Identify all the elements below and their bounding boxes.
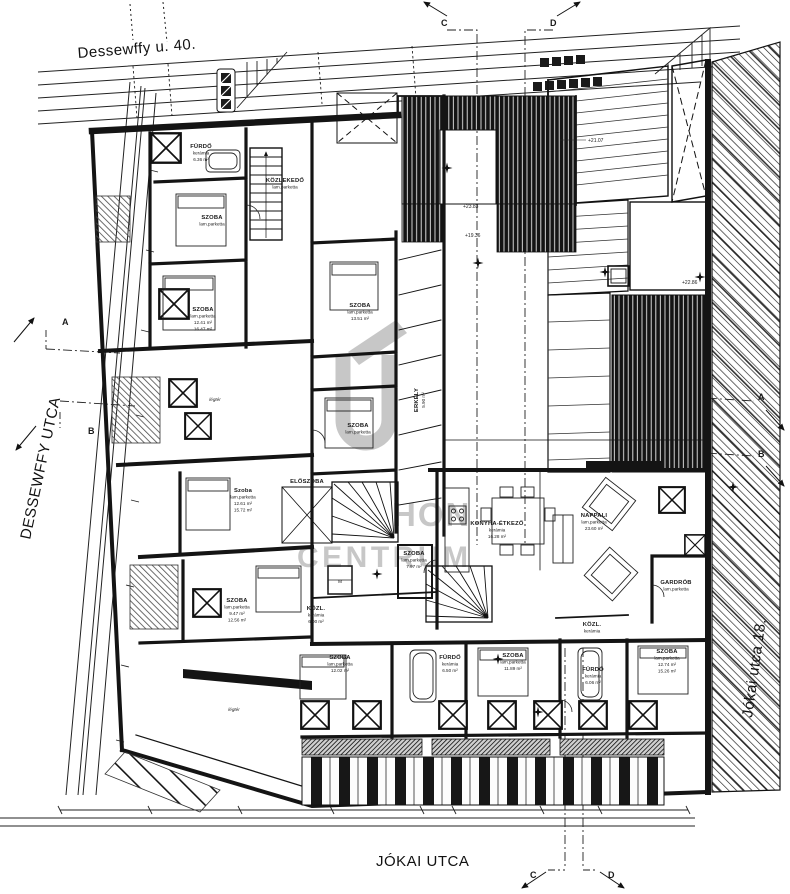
svg-text:9.47 m²: 9.47 m² [229,611,245,616]
dark-roof-block-top-right [497,204,576,252]
room-label-szoba4: SZOBAlam.parketta [345,423,371,435]
svg-text:lam.parketta: lam.parketta [500,660,526,665]
room-label-furdo2: FÜRDŐkerámia6.50 m² [439,654,461,673]
watermark-roof-glyph [348,320,407,365]
svg-text:FÜRDŐ: FÜRDŐ [439,654,461,661]
svg-text:6.06 m²: 6.06 m² [585,680,601,685]
svg-text:12.56 m²: 12.56 m² [228,618,247,623]
svg-text:SZOBA: SZOBA [403,551,425,557]
svg-text:lam.parketta: lam.parketta [663,587,689,592]
lounge-chair [584,547,638,601]
section-marker-c-top: C [441,18,448,28]
svg-text:lam.parketta: lam.parketta [401,558,427,563]
svg-text:+23.83: +23.83 [463,204,479,210]
roof-terrace-room [608,202,706,290]
svg-text:FÜRDŐ: FÜRDŐ [582,666,604,673]
dark-roof-block-middle [612,295,708,472]
room-label-szoba10: SZOBAlam.parketta9.47 m²12.56 m² [224,598,250,623]
svg-text:lam.parketta: lam.parketta [327,662,353,667]
svg-text:FÜRDŐ: FÜRDŐ [190,143,212,150]
section-marker-b-right: B [758,449,765,459]
svg-text:+22.86: +22.86 [682,280,698,286]
elevator-label: M [338,579,342,584]
svg-text:NAPPALI: NAPPALI [581,513,608,519]
room-label-furdo3: FÜRDŐkerámia6.06 m² [582,666,604,685]
svg-text:SZOBA: SZOBA [502,653,524,659]
svg-text:kerámia: kerámia [585,674,602,679]
svg-text:kerámia: kerámia [308,613,325,618]
svg-text:6.00 m²: 6.00 m² [308,619,324,624]
svg-text:SZOBA: SZOBA [329,655,351,661]
section-marker-a-left: A [62,317,69,327]
svg-text:kerámia: kerámia [193,151,210,156]
svg-text:ELŐSZOBA: ELŐSZOBA [290,478,324,485]
svg-text:ERKÉLY: ERKÉLY [412,388,420,412]
svg-text:lam.parketta: lam.parketta [272,185,298,190]
svg-text:12.74 m²: 12.74 m² [658,662,677,667]
room-label-szoba2: SZOBAlam.parketta12.41 m²16.47 m² [190,307,216,332]
svg-text:SZOBA: SZOBA [226,598,248,604]
svg-text:11.89 m²: 11.89 m² [504,666,522,671]
svg-text:kerámia: kerámia [442,662,459,667]
street-label-left: DESSEWFFY UTCA [17,395,64,540]
room-label-kozlekedo: KÖZLEKEDŐlam.parketta [266,177,304,190]
room-label-szoba1: SZOBAlam.parketta [199,215,225,227]
svg-text:KONYHA-ÉTKEZŐ: KONYHA-ÉTKEZŐ [470,519,523,527]
roof-lantern-xbrace [672,60,706,202]
sideboard [553,515,573,563]
svg-text:légtér: légtér [209,397,221,402]
dark-roof-block-top-leg [402,204,444,242]
dark-roof-block-top [402,96,576,204]
room-label-kozl1: KÖZL.kerámia6.00 m² [307,605,326,624]
section-marker-a-right: A [758,392,765,402]
svg-text:lam.parketta: lam.parketta [654,656,680,661]
eloszoba-shaft [282,487,332,543]
svg-text:KÖZL.: KÖZL. [583,621,602,628]
svg-text:SZOBA: SZOBA [192,307,214,313]
svg-text:15.72 m²: 15.72 m² [234,508,253,513]
svg-text:23.60 m²: 23.60 m² [585,526,604,531]
room-label-kozl2: KÖZL.kerámia [583,621,602,634]
svg-text:12.61 m²: 12.61 m² [234,501,253,506]
svg-text:+19.36: +19.36 [465,233,481,239]
room-label-eloszoba: ELŐSZOBA [290,478,324,485]
bed [186,478,230,530]
room-label-nappali: NAPPALIlam.parketta23.60 m² [581,513,608,531]
svg-text:5.90 m²: 5.90 m² [421,392,426,408]
room-label-gardrob: GARDRÓBlam.parketta [660,578,691,592]
svg-text:lam.parketta: lam.parketta [347,310,373,315]
svg-text:légtér: légtér [228,707,240,712]
svg-text:7.97 m²: 7.97 m² [406,564,422,569]
room-label-szoba8: SZOBAlam.parketta11.89 m² [500,653,526,671]
svg-text:SZOBA: SZOBA [656,649,678,655]
svg-text:lam.parketta: lam.parketta [345,430,371,435]
svg-text:12.41 m²: 12.41 m² [194,320,213,325]
svg-text:6.36 m²: 6.36 m² [193,157,209,162]
svg-text:lam.parketta: lam.parketta [224,605,250,610]
svg-text:kerámia: kerámia [489,528,506,533]
watermark-text-top: HON [392,496,471,533]
svg-text:lam.parketta: lam.parketta [199,222,225,227]
street-label-top: Dessewffy u. 40. [77,36,197,62]
bathtub [410,650,436,702]
svg-text:12.02 m²: 12.02 m² [331,668,350,673]
bathtub [206,150,240,172]
room-label-szoba5: Szobalam.parketta12.61 m²15.72 m² [230,488,256,513]
gray-hatch-blocks [96,196,220,812]
room-label-legter1: légtér [209,397,221,402]
room-label-erkely: ERKÉLY5.90 m² [412,388,426,412]
svg-text:13.51 m²: 13.51 m² [351,316,370,321]
svg-text:SZOBA: SZOBA [347,423,369,429]
svg-text:6.50 m²: 6.50 m² [442,668,458,673]
svg-text:lam.parketta: lam.parketta [190,314,216,319]
svg-text:KÖZLEKEDŐ: KÖZLEKEDŐ [266,177,304,184]
svg-text:SZOBA: SZOBA [349,303,371,309]
svg-text:lam.parketta: lam.parketta [230,495,256,500]
room-label-konyha: KONYHA-ÉTKEZŐkerámia16.28 m² [470,519,523,539]
room-label-legter2: légtér [228,707,240,712]
section-marker-b-left: B [88,426,95,436]
svg-text:16.28 m²: 16.28 m² [488,534,507,539]
svg-text:kerámia: kerámia [584,629,601,634]
svg-text:lam.parketta: lam.parketta [581,520,607,525]
svg-text:Szoba: Szoba [234,488,253,494]
svg-text:KÖZL.: KÖZL. [307,605,326,612]
floorplan-drawing: HON CENTRUM [0,0,790,894]
street-label-bottom: JÓKAI UTCA [376,853,469,870]
room-label-szoba3: SZOBAlam.parketta13.51 m² [347,303,373,321]
svg-text:16.47 m²: 16.47 m² [194,327,213,332]
svg-text:SZOBA: SZOBA [201,215,223,221]
bed [256,566,301,612]
section-marker-d-top: D [550,18,557,28]
svg-text:+21.07: +21.07 [588,138,604,144]
room-label-szoba7: SZOBAlam.parketta12.02 m² [327,655,353,673]
room-label-szoba9: SZOBAlam.parketta12.74 m²15.26 m² [654,649,680,674]
floorplan-svg: HON CENTRUM [0,0,790,894]
svg-text:GARDRÓB: GARDRÓB [660,578,691,586]
terrace-deck [302,739,664,805]
svg-text:15.26 m²: 15.26 m² [658,669,677,674]
